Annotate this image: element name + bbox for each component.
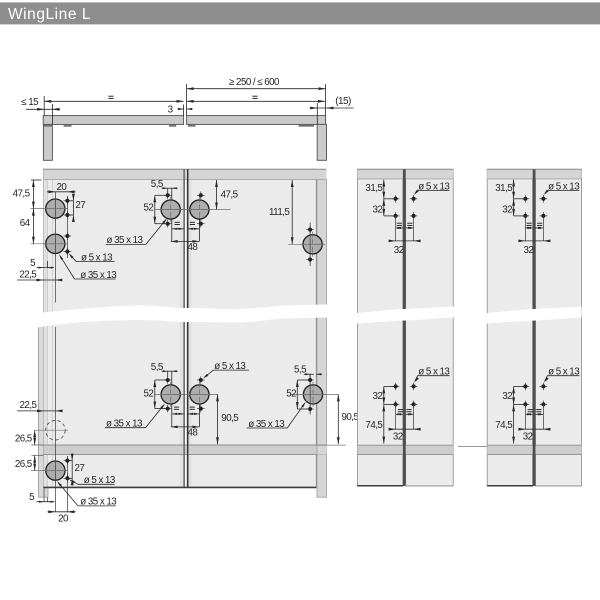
svg-text:74,5: 74,5 [365, 420, 383, 431]
svg-text:90,5: 90,5 [221, 413, 239, 424]
svg-text:27: 27 [75, 463, 85, 474]
svg-text:52: 52 [143, 388, 153, 399]
svg-text:47,5: 47,5 [13, 188, 31, 199]
svg-text:27: 27 [75, 200, 85, 211]
svg-text:20: 20 [58, 514, 69, 525]
svg-text:26,5: 26,5 [15, 459, 33, 470]
svg-text:31,5: 31,5 [365, 183, 383, 194]
svg-text:22,5: 22,5 [20, 400, 38, 411]
svg-text:52: 52 [286, 388, 296, 399]
svg-text:(15): (15) [335, 96, 351, 107]
svg-text:47,5: 47,5 [221, 189, 239, 200]
svg-text:5,5: 5,5 [151, 179, 164, 190]
svg-text:64: 64 [20, 218, 31, 229]
svg-text:32: 32 [502, 205, 512, 216]
svg-text:32: 32 [523, 432, 533, 443]
svg-text:31,5: 31,5 [495, 183, 513, 194]
svg-text:WingLine L: WingLine L [8, 6, 91, 23]
svg-text:≤ 15: ≤ 15 [21, 97, 39, 108]
svg-text:90,5: 90,5 [342, 412, 360, 423]
svg-text:32: 32 [372, 205, 382, 216]
svg-text:32: 32 [523, 245, 533, 256]
svg-text:74,5: 74,5 [495, 420, 513, 431]
svg-text:32: 32 [394, 245, 404, 256]
svg-text:≥ 250 / ≤ 600: ≥ 250 / ≤ 600 [229, 77, 280, 88]
svg-text:22,5: 22,5 [19, 269, 37, 280]
svg-text:111,5: 111,5 [269, 207, 290, 218]
svg-text:5,5: 5,5 [294, 365, 307, 376]
svg-text:48: 48 [188, 242, 199, 253]
svg-text:32: 32 [502, 391, 512, 402]
svg-text:5,5: 5,5 [151, 362, 164, 373]
svg-text:48: 48 [188, 427, 199, 438]
svg-text:32: 32 [372, 391, 382, 402]
svg-text:20: 20 [56, 182, 67, 193]
svg-text:32: 32 [393, 432, 403, 443]
svg-text:52: 52 [143, 203, 153, 214]
svg-text:26,5: 26,5 [15, 434, 33, 445]
